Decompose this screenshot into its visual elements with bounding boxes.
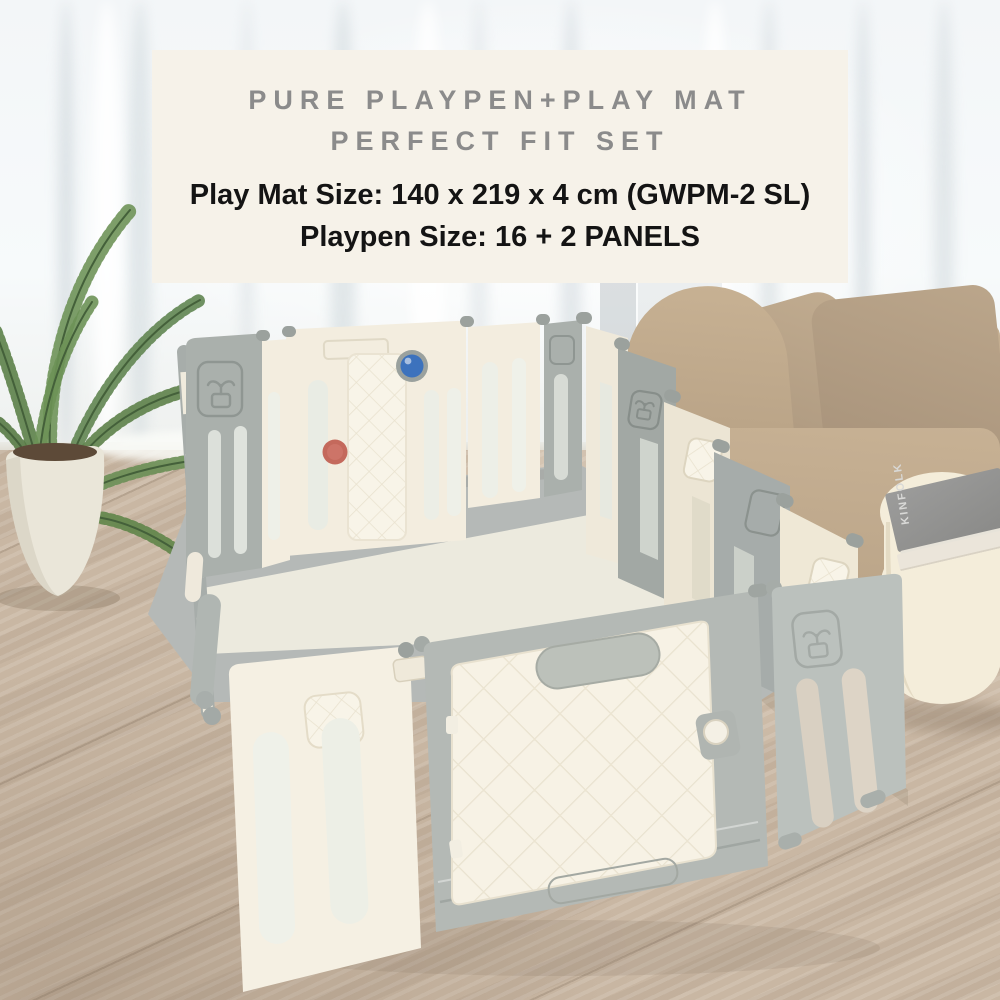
product-photo-scene: KINFOLK bbox=[0, 0, 1000, 1000]
back-panel-cream-1 bbox=[262, 339, 290, 568]
promo-banner: PURE PLAYPEN+PLAY MAT PERFECT FIT SET Pl… bbox=[152, 50, 848, 283]
panel-slot bbox=[600, 382, 612, 520]
back-panel-gray-2 bbox=[544, 320, 582, 497]
back-panel-cream-2 bbox=[468, 322, 540, 508]
banner-title-line-2: PERFECT FIT SET bbox=[152, 121, 848, 162]
front-panel-cream bbox=[229, 636, 430, 992]
banner-title-line-1: PURE PLAYPEN+PLAY MAT bbox=[152, 80, 848, 121]
panel-slot bbox=[252, 731, 295, 944]
panel-slot bbox=[208, 430, 221, 558]
panel-slot bbox=[692, 496, 710, 608]
door-hinge-tab bbox=[449, 839, 463, 858]
back-panel-gray-1 bbox=[186, 334, 262, 580]
hinge-cap bbox=[398, 642, 414, 658]
quilted-strip bbox=[348, 354, 406, 540]
panel-slot bbox=[512, 358, 526, 492]
back-panel-cream-wide bbox=[286, 321, 466, 556]
banner-spacer bbox=[152, 162, 848, 174]
front-right-gray-panel bbox=[772, 574, 906, 851]
panel-slot bbox=[234, 426, 247, 554]
panel-slot bbox=[482, 362, 498, 498]
blue-ball-toy bbox=[396, 350, 428, 382]
panel-slot bbox=[554, 374, 568, 480]
banner-spec-line-1: Play Mat Size: 140 x 219 x 4 cm (GWPM-2 … bbox=[152, 174, 848, 216]
door-lock-knob bbox=[704, 720, 728, 744]
panel-slot bbox=[268, 392, 280, 540]
panel-slot bbox=[447, 388, 461, 516]
hinge-bracket bbox=[393, 656, 430, 683]
panel-slot bbox=[640, 438, 658, 560]
panel-slot bbox=[424, 390, 439, 520]
red-knob-toy bbox=[323, 440, 348, 465]
door-hinge-tab bbox=[446, 716, 458, 734]
banner-spec-line-2: Playpen Size: 16 + 2 PANELS bbox=[152, 216, 848, 258]
